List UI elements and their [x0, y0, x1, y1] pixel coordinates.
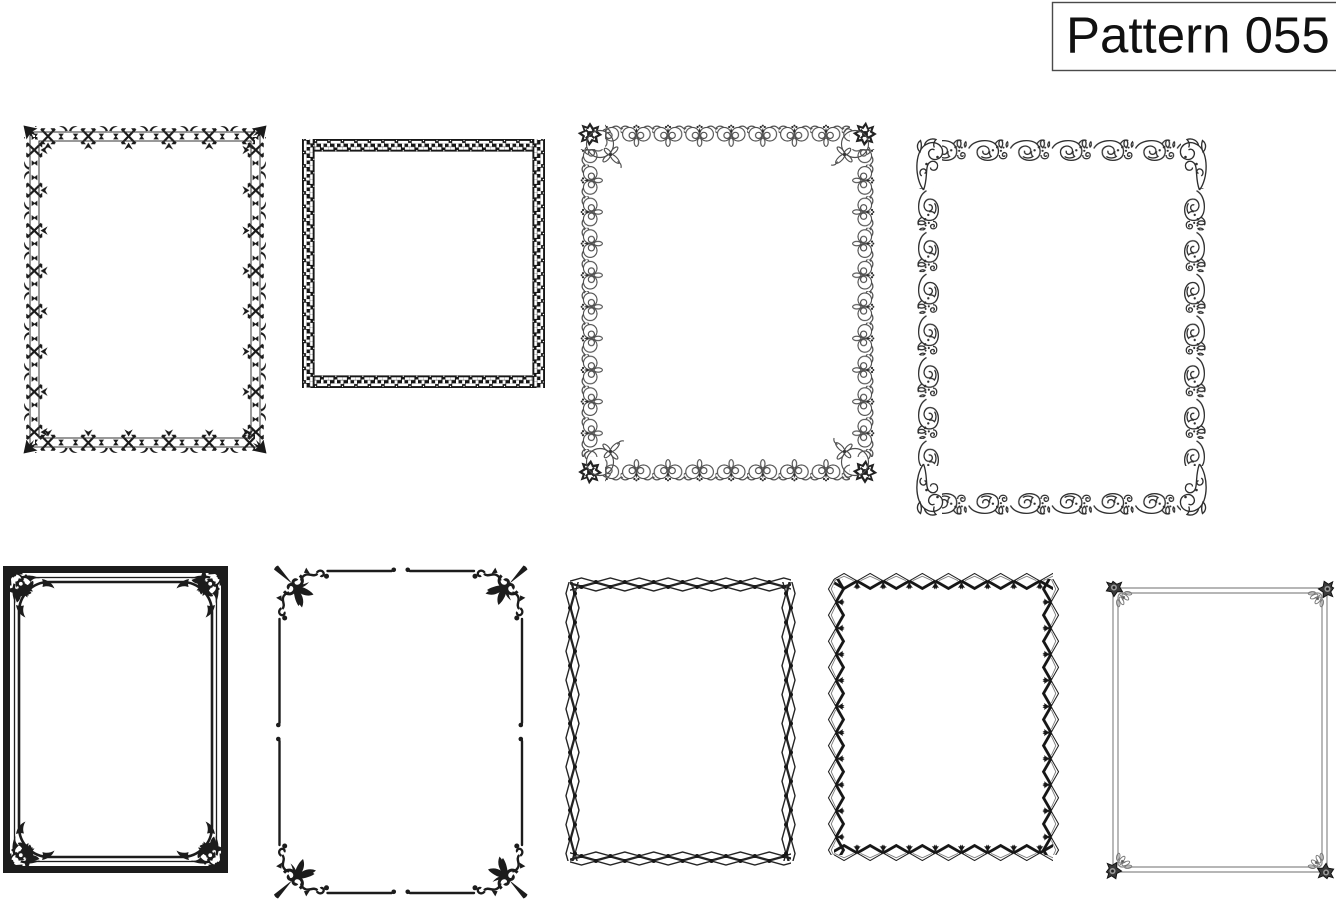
svg-text:Pattern 055: Pattern 055 — [1066, 7, 1330, 64]
